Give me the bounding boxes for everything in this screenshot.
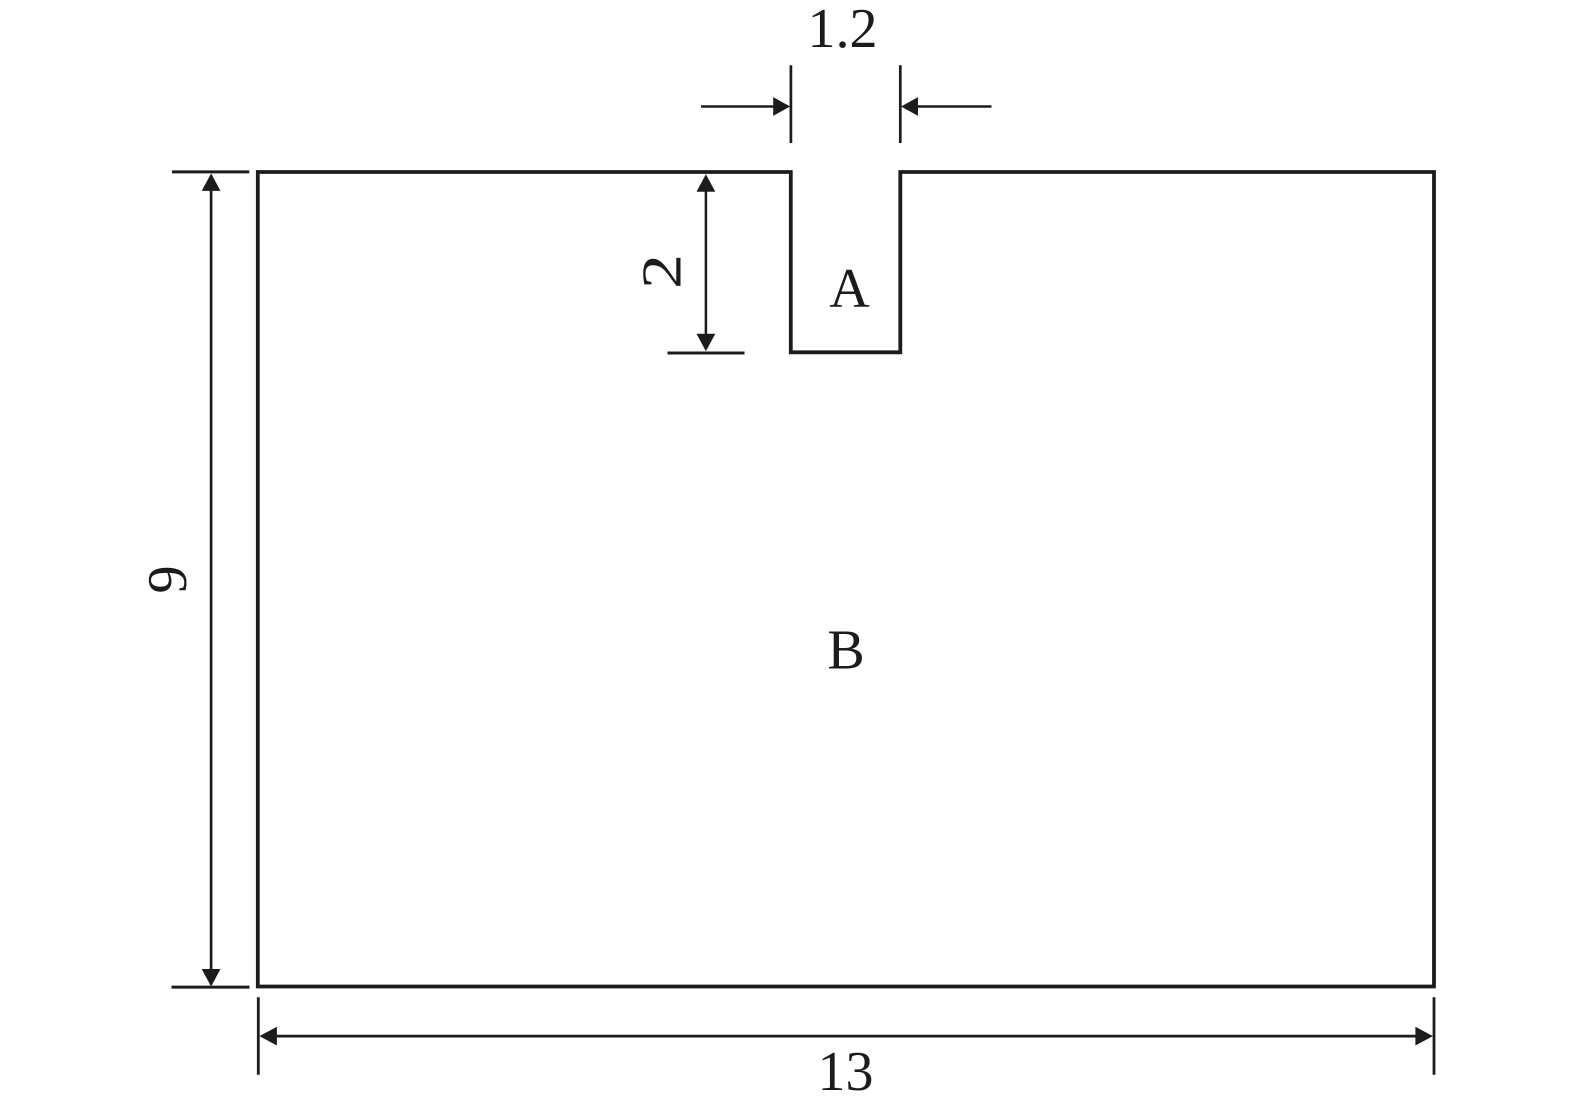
svg-text:B: B (827, 620, 864, 682)
svg-text:9: 9 (137, 566, 199, 594)
svg-text:13: 13 (818, 1041, 874, 1103)
svg-text:A: A (829, 258, 870, 320)
svg-text:2: 2 (631, 254, 693, 289)
svg-text:1.2: 1.2 (808, 0, 878, 60)
